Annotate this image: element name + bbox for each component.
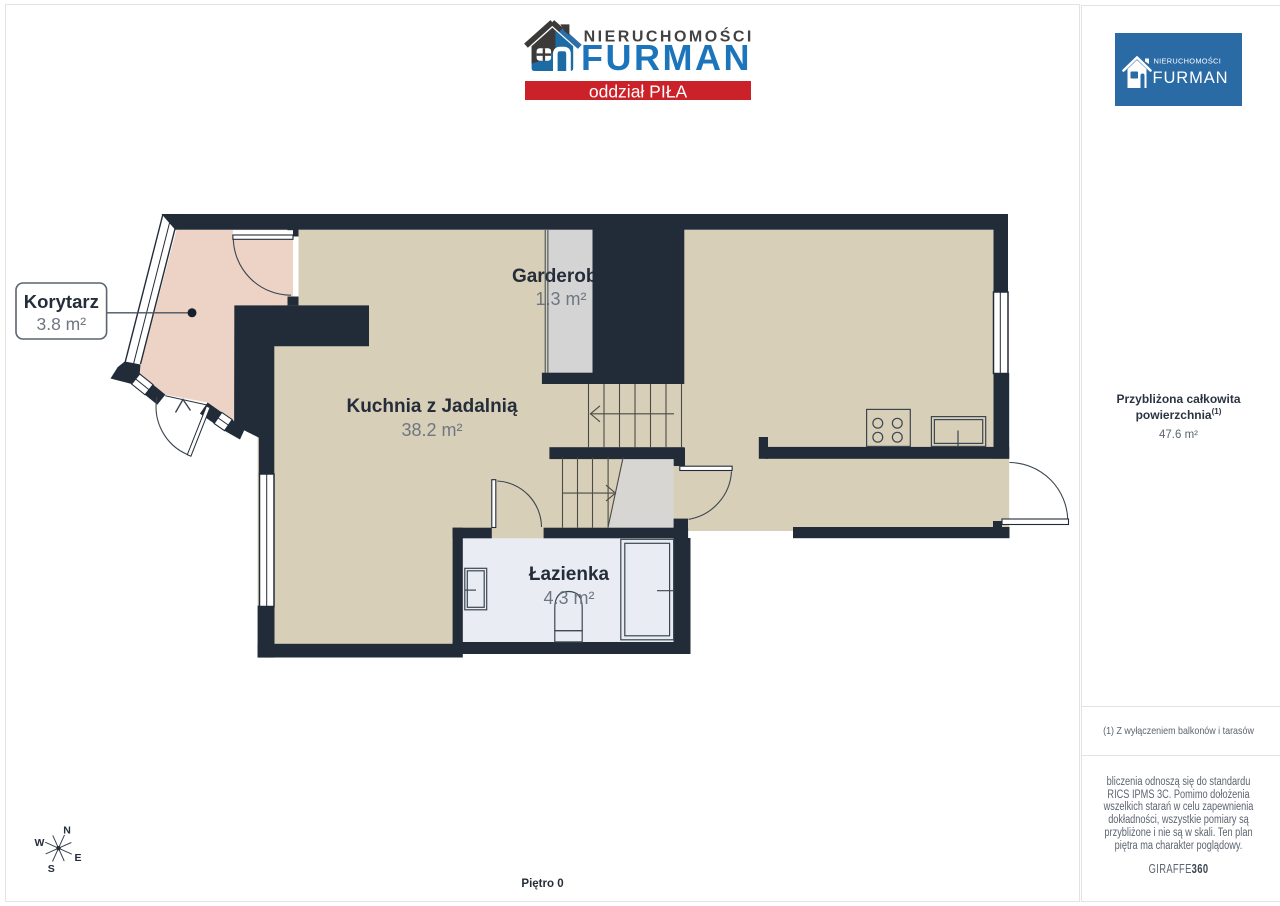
svg-text:Korytarz: Korytarz [24,291,99,312]
svg-text:38.2 m²: 38.2 m² [401,420,462,440]
svg-text:W: W [35,837,45,849]
svg-text:Kuchnia z Jadalnią: Kuchnia z Jadalnią [346,396,517,417]
svg-text:3.8 m²: 3.8 m² [36,314,86,334]
svg-text:FURMAN: FURMAN [1153,69,1229,87]
svg-text:1.3 m²: 1.3 m² [535,289,586,309]
svg-text:NIERUCHOMOŚCI: NIERUCHOMOŚCI [1154,57,1222,66]
svg-text:Łazienka: Łazienka [529,564,610,585]
svg-text:4.3 m²: 4.3 m² [543,588,594,608]
svg-text:S: S [48,863,55,875]
svg-text:N: N [63,825,71,837]
svg-text:E: E [74,852,81,864]
